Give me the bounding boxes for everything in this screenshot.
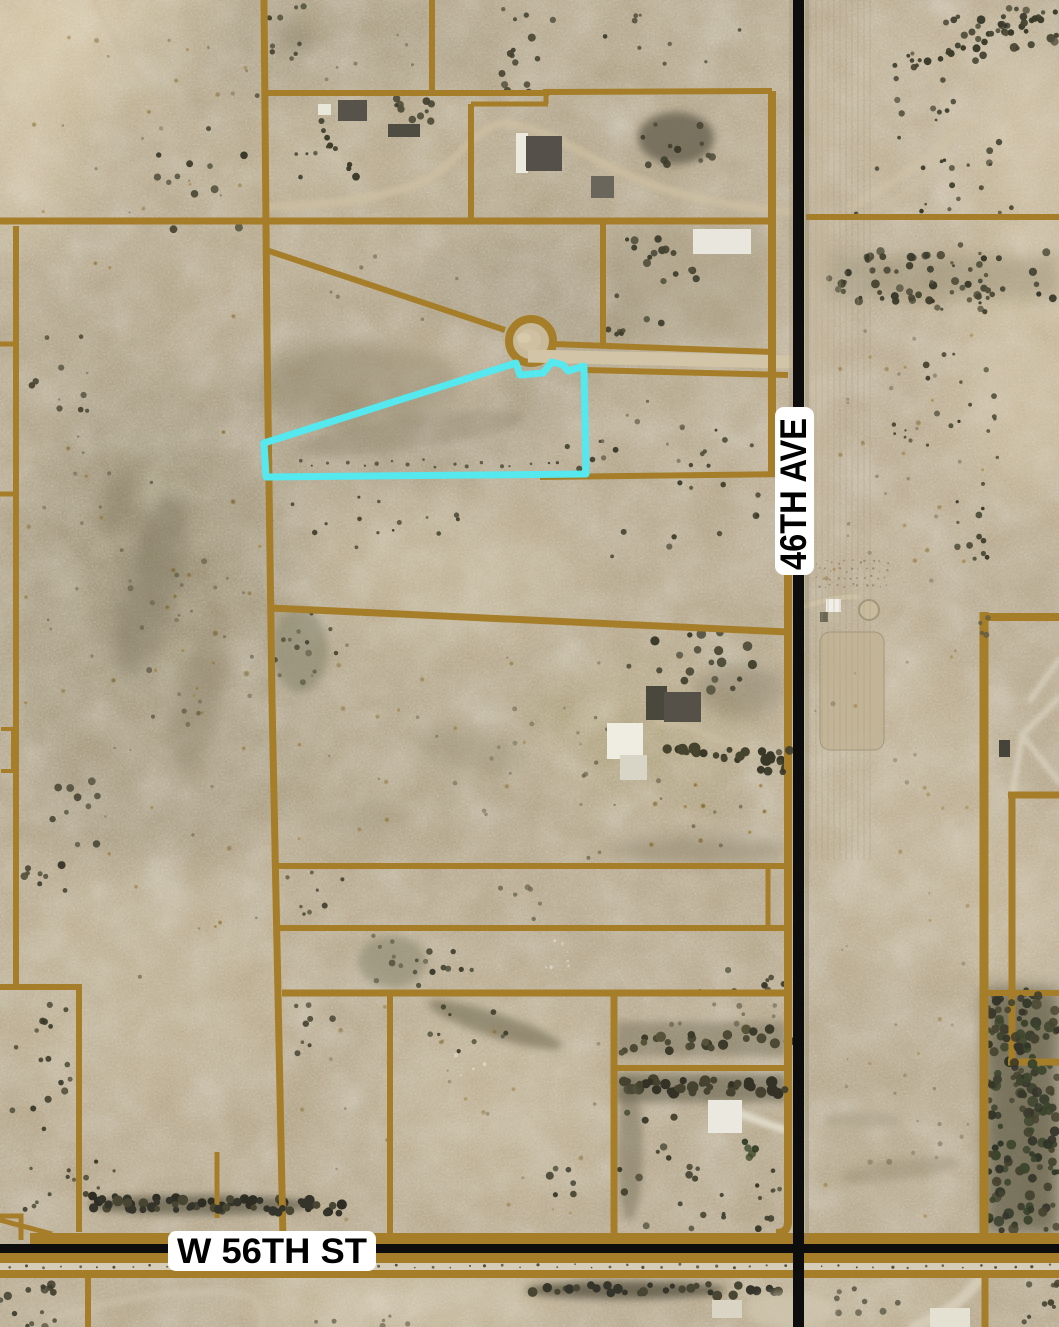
svg-text:W 56TH ST: W 56TH ST <box>177 1232 367 1271</box>
svg-text:46TH AVE: 46TH AVE <box>773 418 814 570</box>
